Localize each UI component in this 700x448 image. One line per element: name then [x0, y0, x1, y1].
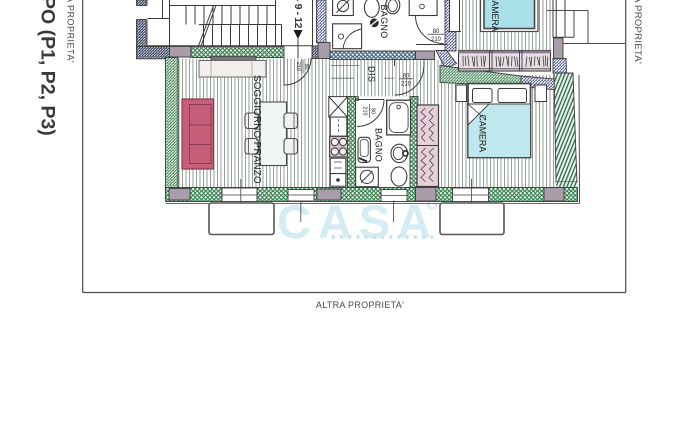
svg-text:A PROPRIETA': A PROPRIETA': [66, 0, 76, 63]
svg-text:- 9 - 12: - 9 - 12: [292, 0, 304, 29]
svg-text:210: 210: [362, 106, 368, 115]
svg-text:CAMERA: CAMERA: [490, 0, 500, 32]
svg-text:DIS: DIS: [367, 66, 377, 83]
svg-text:90: 90: [303, 63, 309, 69]
svg-text:CAMERA: CAMERA: [478, 115, 488, 153]
svg-text:A PROPRIETA': A PROPRIETA': [632, 0, 643, 64]
svg-text:BAGNO: BAGNO: [379, 5, 389, 39]
svg-text:ALTRA PROPRIETA': ALTRA PROPRIETA': [316, 300, 404, 310]
svg-text:210: 210: [401, 82, 412, 88]
svg-text:80: 80: [370, 108, 376, 114]
svg-text:PO (P1, P2, P3): PO (P1, P2, P3): [37, 0, 59, 136]
svg-text:210: 210: [295, 62, 301, 71]
svg-text:BAGNO: BAGNO: [374, 128, 384, 162]
svg-text:SOGGIORNO-PRANZO: SOGGIORNO-PRANZO: [251, 75, 262, 184]
svg-text:210: 210: [431, 37, 442, 43]
